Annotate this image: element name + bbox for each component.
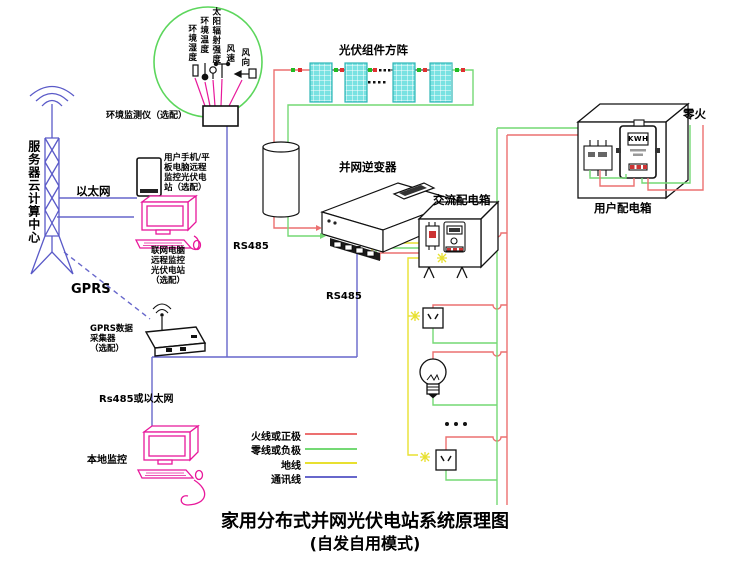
legend-label-comm: 通讯线 bbox=[180, 471, 301, 486]
phone-note-line: 用户手机/平 bbox=[164, 153, 210, 163]
collector-note-line: GPRS数据 bbox=[90, 324, 133, 334]
sensor-label-temperature: 环境温度 bbox=[198, 16, 208, 54]
diagram-subtitle: (自发自用模式) bbox=[0, 530, 730, 554]
local-monitor-label: 本地监控 bbox=[87, 455, 127, 467]
wind-vane-sensor-icon bbox=[235, 69, 256, 78]
phone-note-line: 板电脑远程 bbox=[164, 163, 207, 173]
gprs-collector-icon bbox=[146, 304, 205, 356]
legend-line-neutral bbox=[305, 448, 357, 450]
phone-note-line: 站（选配） bbox=[164, 183, 207, 193]
pv-panel bbox=[393, 63, 415, 102]
legend-label-ground: 地线 bbox=[180, 457, 301, 472]
socket-2-ground-symbol bbox=[420, 452, 430, 462]
socket-1-icon bbox=[423, 308, 443, 328]
user-box-icon bbox=[578, 104, 688, 198]
rs485-label-left: RS485 bbox=[233, 241, 269, 253]
pc-note-line: 远程监控 bbox=[151, 256, 185, 266]
pv-array-label: 光伏组件方阵 bbox=[339, 44, 408, 57]
user-breaker-icon bbox=[584, 146, 612, 170]
socket-1-ground-symbol bbox=[410, 311, 420, 321]
rs485-or-ethernet-label: Rs485或以太网 bbox=[99, 394, 174, 406]
sensor-label-wind-dir: 风向 bbox=[239, 48, 249, 67]
pv-panel bbox=[430, 63, 452, 102]
env-monitor-box bbox=[203, 106, 238, 126]
load-ellipsis-dots bbox=[445, 422, 467, 426]
legend-line-live bbox=[305, 433, 357, 435]
comm-lines bbox=[57, 126, 357, 427]
legend-line-ground bbox=[305, 462, 357, 464]
socket-2-icon bbox=[436, 450, 456, 470]
temperature-sensor-icon bbox=[202, 63, 208, 80]
meter-display: KWH bbox=[628, 135, 648, 143]
sensor-label-wind-speed: 风速 bbox=[224, 44, 234, 63]
pc-note-line: 联网电脑 bbox=[151, 246, 185, 256]
remote-pc-icon bbox=[136, 196, 201, 250]
pv-panel-array bbox=[310, 63, 452, 102]
radiation-sensor-icon bbox=[210, 67, 216, 79]
ac-box-label: 交流配电箱 bbox=[433, 194, 491, 207]
bulb-icon bbox=[420, 359, 446, 398]
sensor-label-radiation: 太阳辐射强度 bbox=[210, 7, 220, 64]
rs485-label-right: RS485 bbox=[326, 291, 362, 303]
pv-panel bbox=[310, 63, 332, 102]
user-box-label: 用户配电箱 bbox=[594, 202, 652, 215]
sensor-rays bbox=[195, 78, 242, 106]
collector-note-line: （选配） bbox=[90, 344, 124, 354]
legend-label-neutral: 零线或负极 bbox=[180, 442, 301, 457]
legend-label-live: 火线或正极 bbox=[180, 428, 301, 443]
schematic-diagram: 环境湿度 环境温度 太阳辐射强度 风速 风向 环境监测仪（选配） 服务器云计算中… bbox=[0, 0, 730, 572]
pv-panel bbox=[345, 63, 367, 102]
collector-note-line: 采集器 bbox=[90, 334, 116, 344]
ac-box-ground-symbol bbox=[437, 253, 447, 263]
env-station-label: 环境监测仪（选配） bbox=[106, 111, 187, 121]
dc-isolator-cylinder bbox=[263, 142, 299, 217]
pc-note-line: （选配） bbox=[151, 276, 185, 286]
ac-box-icon bbox=[419, 202, 498, 278]
humidity-sensor-icon bbox=[193, 65, 198, 76]
legend-line-comm bbox=[305, 476, 357, 478]
sensor-label-humidity: 环境湿度 bbox=[186, 24, 196, 62]
ground-wires bbox=[372, 243, 419, 455]
phone-note-line: 监控光伏电 bbox=[164, 173, 207, 183]
tower-signal-arcs bbox=[30, 87, 74, 107]
server-center-label: 服务器云计算中心 bbox=[26, 140, 40, 244]
ethernet-label: 以太网 bbox=[76, 185, 111, 198]
grid-wires-label: 零火 bbox=[683, 108, 706, 121]
phone-icon bbox=[137, 158, 161, 196]
pc-note-line: 光伏电站 bbox=[151, 266, 185, 276]
gprs-label: GPRS bbox=[71, 283, 111, 298]
inverter-label: 并网逆变器 bbox=[339, 161, 397, 174]
